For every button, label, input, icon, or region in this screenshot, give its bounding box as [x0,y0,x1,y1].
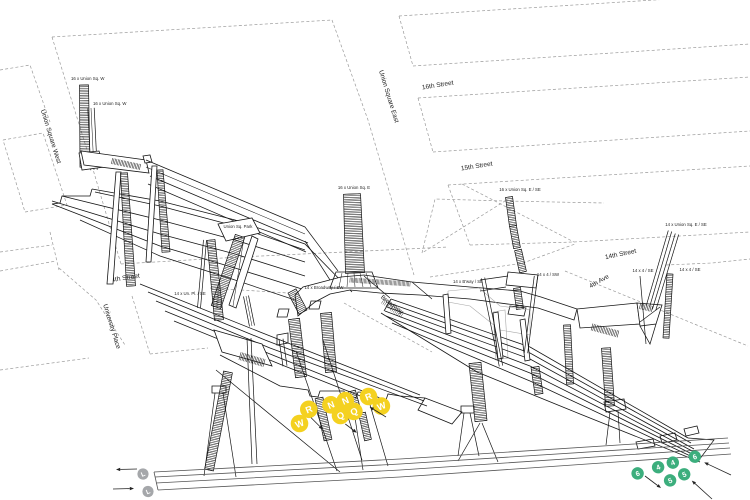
svg-text:14 x Union Sq. E / SE: 14 x Union Sq. E / SE [665,222,707,227]
svg-text:14 x 4 / SE: 14 x 4 / SE [632,268,653,273]
svg-text:16 x Union Sq. E / SE: 16 x Union Sq. E / SE [499,187,541,192]
svg-text:16 x Union Sq. W: 16 x Union Sq. W [93,101,127,106]
svg-text:Union Sq. Park: Union Sq. Park [224,224,254,229]
svg-text:14 x Broadway / SW: 14 x Broadway / SW [305,285,345,290]
svg-text:16 x Union Sq. E: 16 x Union Sq. E [338,185,370,190]
svg-text:16 x Union Sq. W: 16 x Union Sq. W [71,76,105,81]
svg-text:14 x 4 / SE: 14 x 4 / SE [679,267,700,272]
svg-text:14 x 4 / SW: 14 x 4 / SW [537,272,560,277]
svg-text:14 x B'way / SE: 14 x B'way / SE [453,279,483,284]
svg-text:14 x Un. Pl. / SE: 14 x Un. Pl. / SE [174,291,206,296]
